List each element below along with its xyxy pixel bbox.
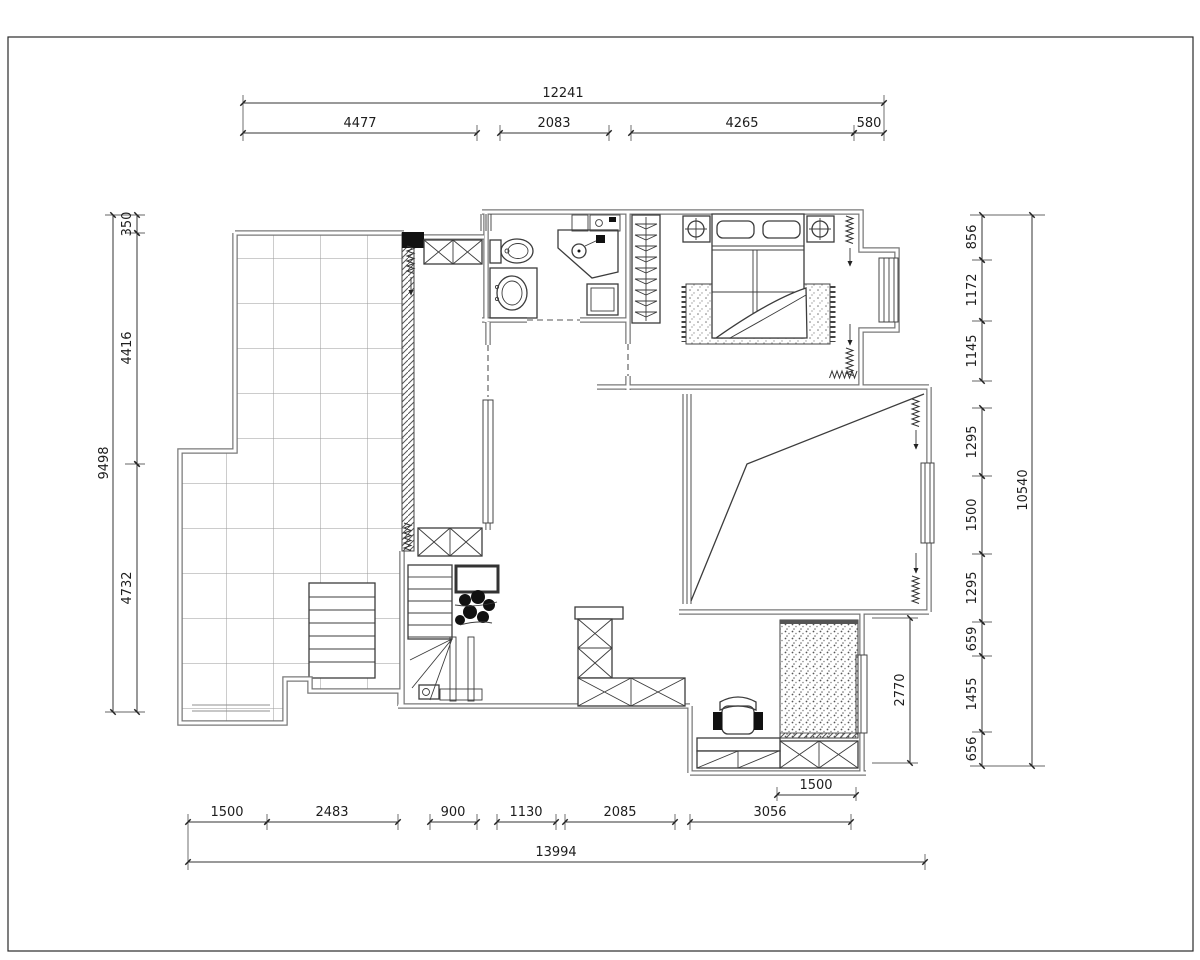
dim-label: 1145 bbox=[965, 334, 980, 367]
ceiling-slope-line bbox=[691, 394, 924, 601]
floor-plan: 12241 4477 2083 4265 580 9498 350 4416 4… bbox=[0, 0, 1200, 960]
terrace-tile-floor bbox=[180, 233, 404, 723]
dim-label: 656 bbox=[965, 737, 980, 762]
planter-box bbox=[456, 566, 498, 592]
study-room bbox=[697, 620, 858, 768]
dim-label: 659 bbox=[965, 627, 980, 652]
dim-label: 2770 bbox=[893, 673, 908, 706]
dim-label: 856 bbox=[965, 225, 980, 250]
dim-label: 2083 bbox=[537, 116, 570, 131]
dim-label: 1500 bbox=[965, 498, 980, 531]
nightstand-lamp-icon bbox=[807, 216, 834, 242]
dim-label: 1172 bbox=[965, 273, 980, 306]
dim-inner-mat-width: 1500 bbox=[777, 778, 856, 801]
dim-label: 1130 bbox=[509, 805, 542, 820]
dim-chain-right: 10540 856 1172 1145 1295 1500 1295 659 1… bbox=[965, 215, 1045, 766]
drawing-sheet: 12241 4477 2083 4265 580 9498 350 4416 4… bbox=[0, 0, 1200, 960]
dim-label: 1500 bbox=[799, 778, 832, 793]
dim-label: 4477 bbox=[343, 116, 376, 131]
dim-label: 2085 bbox=[603, 805, 636, 820]
dim-label: 1295 bbox=[965, 571, 980, 604]
corner-shower-icon bbox=[558, 230, 618, 278]
attic-room bbox=[683, 394, 924, 604]
terrace-steps bbox=[309, 583, 375, 678]
dim-label: 900 bbox=[441, 805, 466, 820]
dim-chain-bottom: 1500 2483 900 1130 2085 3056 13994 bbox=[188, 805, 925, 870]
toilet-icon bbox=[490, 239, 533, 263]
double-bed bbox=[712, 214, 807, 338]
dim-label: 1455 bbox=[965, 677, 980, 710]
washer-icon bbox=[572, 215, 620, 231]
bedroom bbox=[632, 214, 834, 344]
column bbox=[402, 232, 424, 248]
tatami-mat bbox=[780, 620, 858, 738]
dim-inner-room-height: 2770 bbox=[872, 618, 918, 763]
dim-chain-left: 9498 350 4416 4732 bbox=[97, 212, 145, 712]
dim-label-left-overall: 9498 bbox=[97, 446, 112, 479]
l-wardrobe bbox=[575, 607, 685, 706]
dim-chain-top: 12241 4477 2083 4265 580 bbox=[243, 86, 884, 141]
sink-icon bbox=[490, 268, 537, 318]
dim-label: 350 bbox=[120, 212, 135, 237]
hall-cabinet bbox=[418, 528, 482, 556]
dim-label: 1295 bbox=[965, 425, 980, 458]
nightstand-lamp-icon bbox=[683, 216, 710, 242]
mat-cabinet bbox=[780, 741, 858, 768]
shower-tray bbox=[587, 284, 618, 315]
dim-label-top-overall: 12241 bbox=[542, 86, 583, 101]
dim-label-right-overall: 10540 bbox=[1016, 469, 1031, 510]
dim-label: 4732 bbox=[120, 571, 135, 604]
dim-label: 1500 bbox=[210, 805, 243, 820]
wardrobe-hangers bbox=[632, 215, 660, 323]
plant-icon bbox=[455, 590, 497, 625]
dim-label: 4416 bbox=[120, 331, 135, 364]
shoe-cabinet bbox=[424, 240, 482, 264]
bathroom bbox=[490, 215, 620, 318]
hatched-wall bbox=[402, 233, 414, 551]
dim-label: 3056 bbox=[753, 805, 786, 820]
dim-label: 580 bbox=[857, 116, 882, 131]
desk bbox=[697, 738, 780, 768]
dim-label: 2483 bbox=[315, 805, 348, 820]
sliding-door bbox=[683, 394, 691, 604]
desk-chair-icon bbox=[713, 697, 763, 734]
dim-label: 4265 bbox=[725, 116, 758, 131]
dim-label-bottom-overall: 13994 bbox=[535, 845, 576, 860]
